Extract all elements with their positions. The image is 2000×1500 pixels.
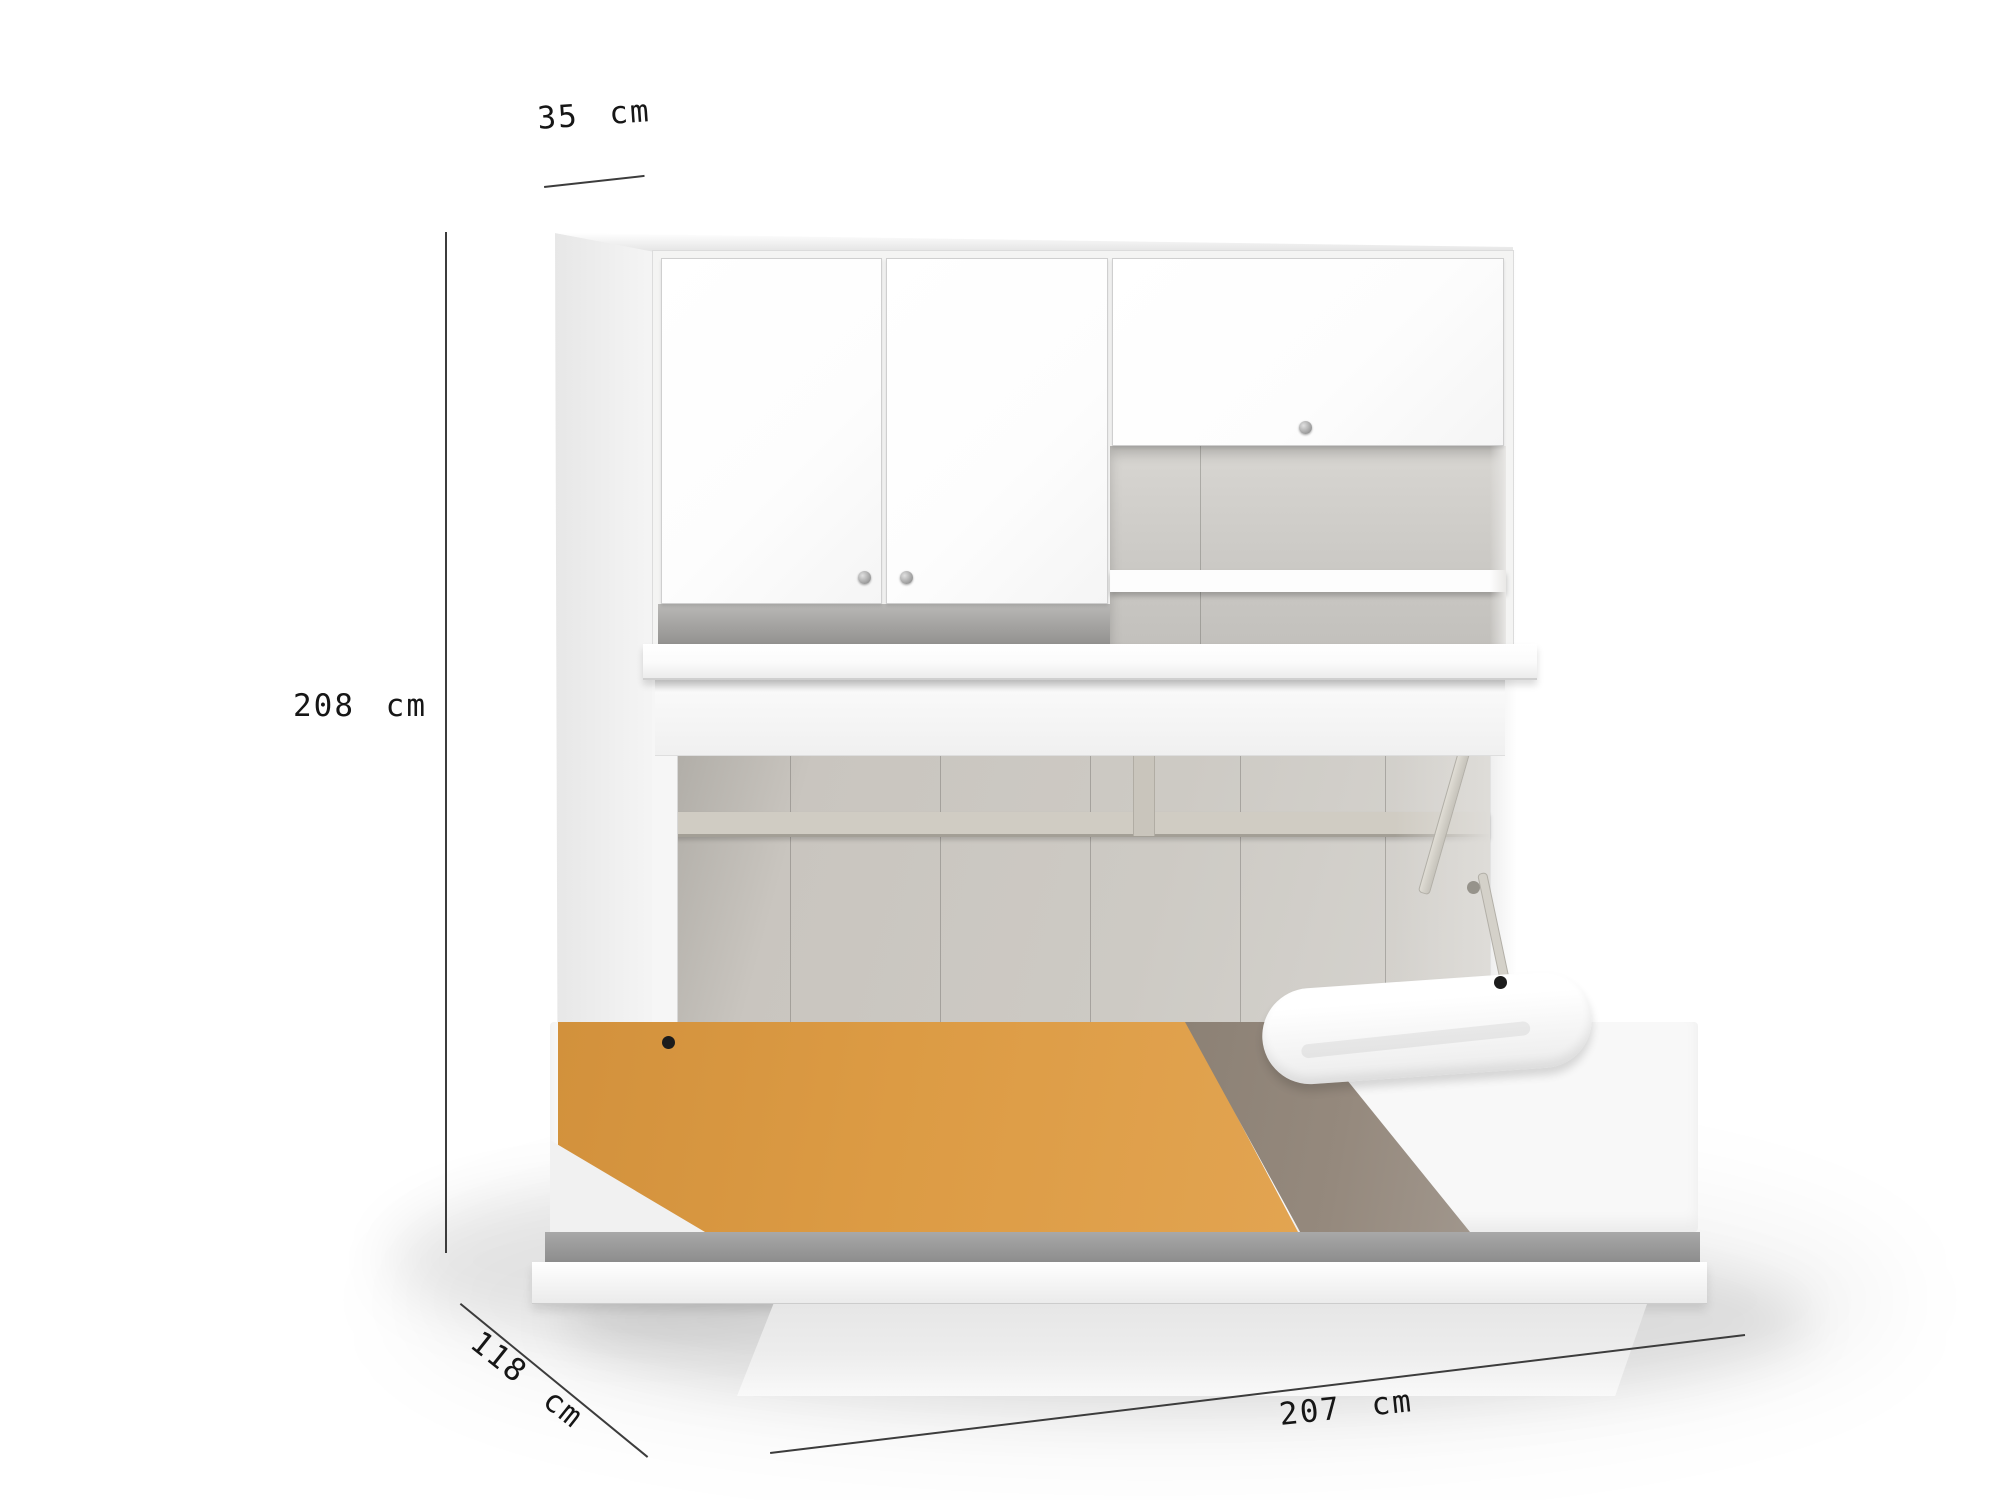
back-panel-seam (1200, 446, 1201, 648)
under-door-recess (658, 604, 1114, 648)
bed-platform-edge (545, 1232, 1700, 1262)
lift-arm-upper (1418, 733, 1475, 895)
flip-door-knob (1299, 421, 1312, 434)
orange-blanket (558, 1022, 1298, 1232)
bed-frame (532, 1262, 1707, 1304)
open-compartment (1110, 446, 1506, 648)
flip-up-door (1112, 258, 1504, 446)
door-knob-right (900, 571, 913, 584)
lift-arm-joint (1467, 881, 1480, 894)
cabinet-door-right (886, 258, 1108, 604)
alcove-support-post (1133, 756, 1155, 836)
desk-shelf-surface (643, 644, 1537, 680)
cabinet-door-left (661, 258, 882, 604)
compartment-shelf (1110, 570, 1506, 592)
dimension-line-depth-top (544, 175, 645, 188)
pillow-fold (1301, 1021, 1531, 1059)
hinge-pin-right (1494, 976, 1507, 989)
hinge-pin-left (662, 1036, 675, 1049)
alcove-horizontal-rail (660, 812, 1490, 837)
desk-overhang-shadow (655, 678, 1505, 692)
dimension-label-depth-top: 35 cm (513, 91, 675, 138)
door-knob-left (858, 571, 871, 584)
bed-pedestal-base (737, 1304, 1647, 1396)
dimension-line-height (445, 232, 447, 1253)
wall-bed-dimension-diagram: 35 cm 208 cm 118 cm 207 cm (0, 0, 2000, 1500)
compartment-right-wall (1490, 446, 1506, 648)
dimension-label-height: 208 cm (260, 688, 460, 724)
